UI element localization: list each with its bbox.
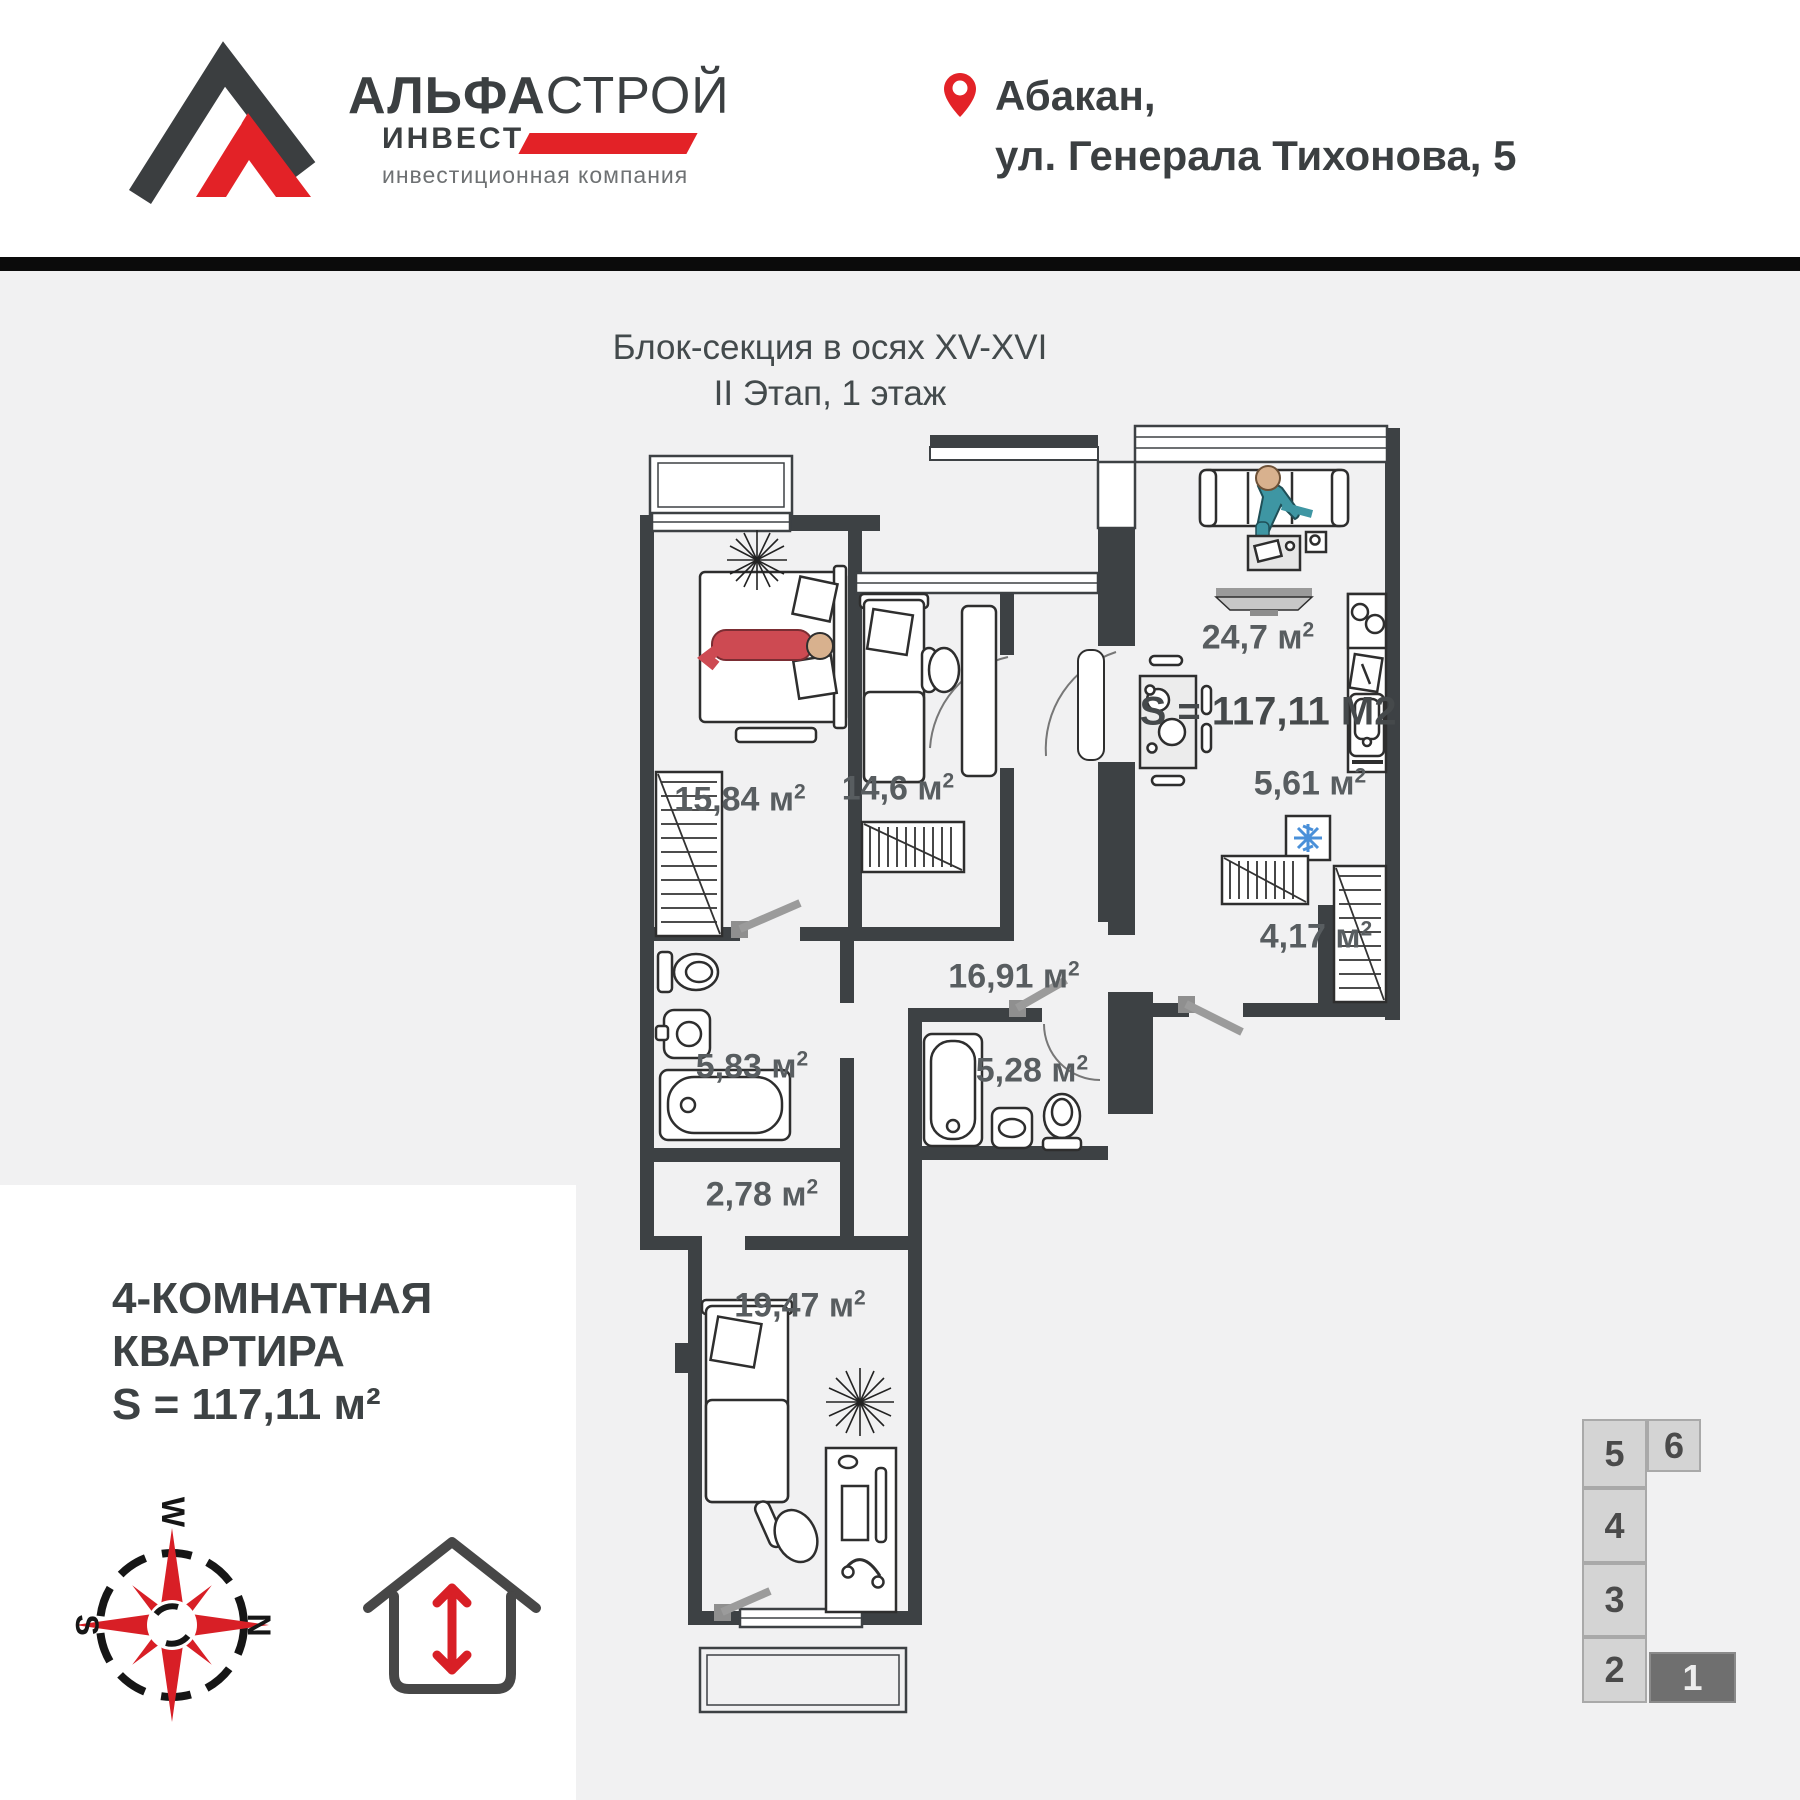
label-closet: 4,17 м2 bbox=[1260, 917, 1372, 956]
miniplan-cell-1-active: 1 bbox=[1649, 1652, 1736, 1703]
furniture-bedroom2 bbox=[860, 594, 996, 872]
fridge bbox=[1286, 816, 1330, 860]
summary-text: 4-КОМНАТНАЯ КВАРТИРА S = 117,11 м² bbox=[112, 1272, 432, 1431]
label-living: 24,7 м2 bbox=[1202, 618, 1314, 657]
label-corridor: 16,91 м2 bbox=[948, 957, 1079, 996]
miniplan-cell-6: 6 bbox=[1647, 1419, 1701, 1472]
compass-left-label: S bbox=[69, 1614, 105, 1635]
furniture-bedroom3 bbox=[702, 1300, 896, 1612]
plant-icon bbox=[727, 530, 787, 590]
summary-line3: S = 117,11 м² bbox=[112, 1378, 432, 1431]
label-bedroom2: 14,6 м2 bbox=[842, 769, 954, 808]
summary-line2: КВАРТИРА bbox=[112, 1325, 432, 1378]
furniture-bath1 bbox=[656, 952, 790, 1140]
compass-rose-icon: W N S bbox=[0, 1440, 340, 1800]
label-bedroom3: 19,47 м2 bbox=[734, 1286, 865, 1325]
snowflake-icon bbox=[1294, 824, 1322, 852]
plant-icon bbox=[826, 1368, 894, 1436]
label-bath2: 5,28 м2 bbox=[976, 1051, 1088, 1090]
miniplan-cell-5: 5 bbox=[1582, 1419, 1647, 1488]
label-hall: 2,78 м2 bbox=[706, 1175, 818, 1214]
label-kitchen: 5,61 м2 bbox=[1254, 764, 1366, 803]
miniplan-cell-3: 3 bbox=[1582, 1563, 1647, 1637]
miniplan-cell-2: 2 bbox=[1582, 1637, 1647, 1703]
label-bedroom1: 15,84 м2 bbox=[674, 780, 805, 819]
compass-right-label: N bbox=[241, 1613, 277, 1636]
miniplan-cell-4: 4 bbox=[1582, 1488, 1647, 1563]
summary-line1: 4-КОМНАТНАЯ bbox=[112, 1272, 432, 1325]
label-bath1: 5,83 м2 bbox=[696, 1047, 808, 1086]
label-total-area: S = 117,11 М2 bbox=[1140, 690, 1397, 735]
furniture-bedroom1 bbox=[656, 530, 846, 936]
house-height-icon bbox=[340, 1520, 560, 1720]
compass-top-label: W bbox=[155, 1497, 191, 1528]
